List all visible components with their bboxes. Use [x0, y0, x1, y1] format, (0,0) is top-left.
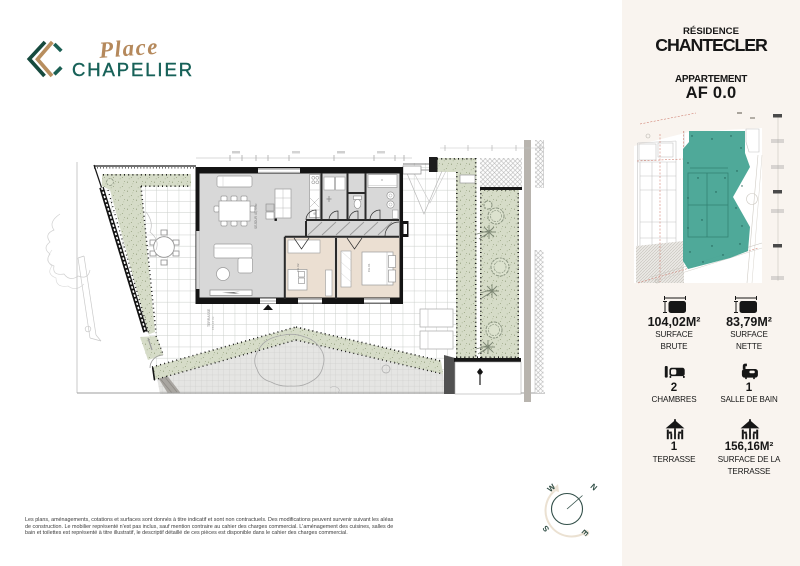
svg-text:CH.02: CH.02 — [296, 263, 300, 272]
svg-text:156,16 m²: 156,16 m² — [211, 316, 215, 330]
svg-text:CH.01: CH.01 — [367, 263, 371, 272]
svg-text:SEJOUR 43,75m²: SEJOUR 43,75m² — [254, 203, 258, 229]
